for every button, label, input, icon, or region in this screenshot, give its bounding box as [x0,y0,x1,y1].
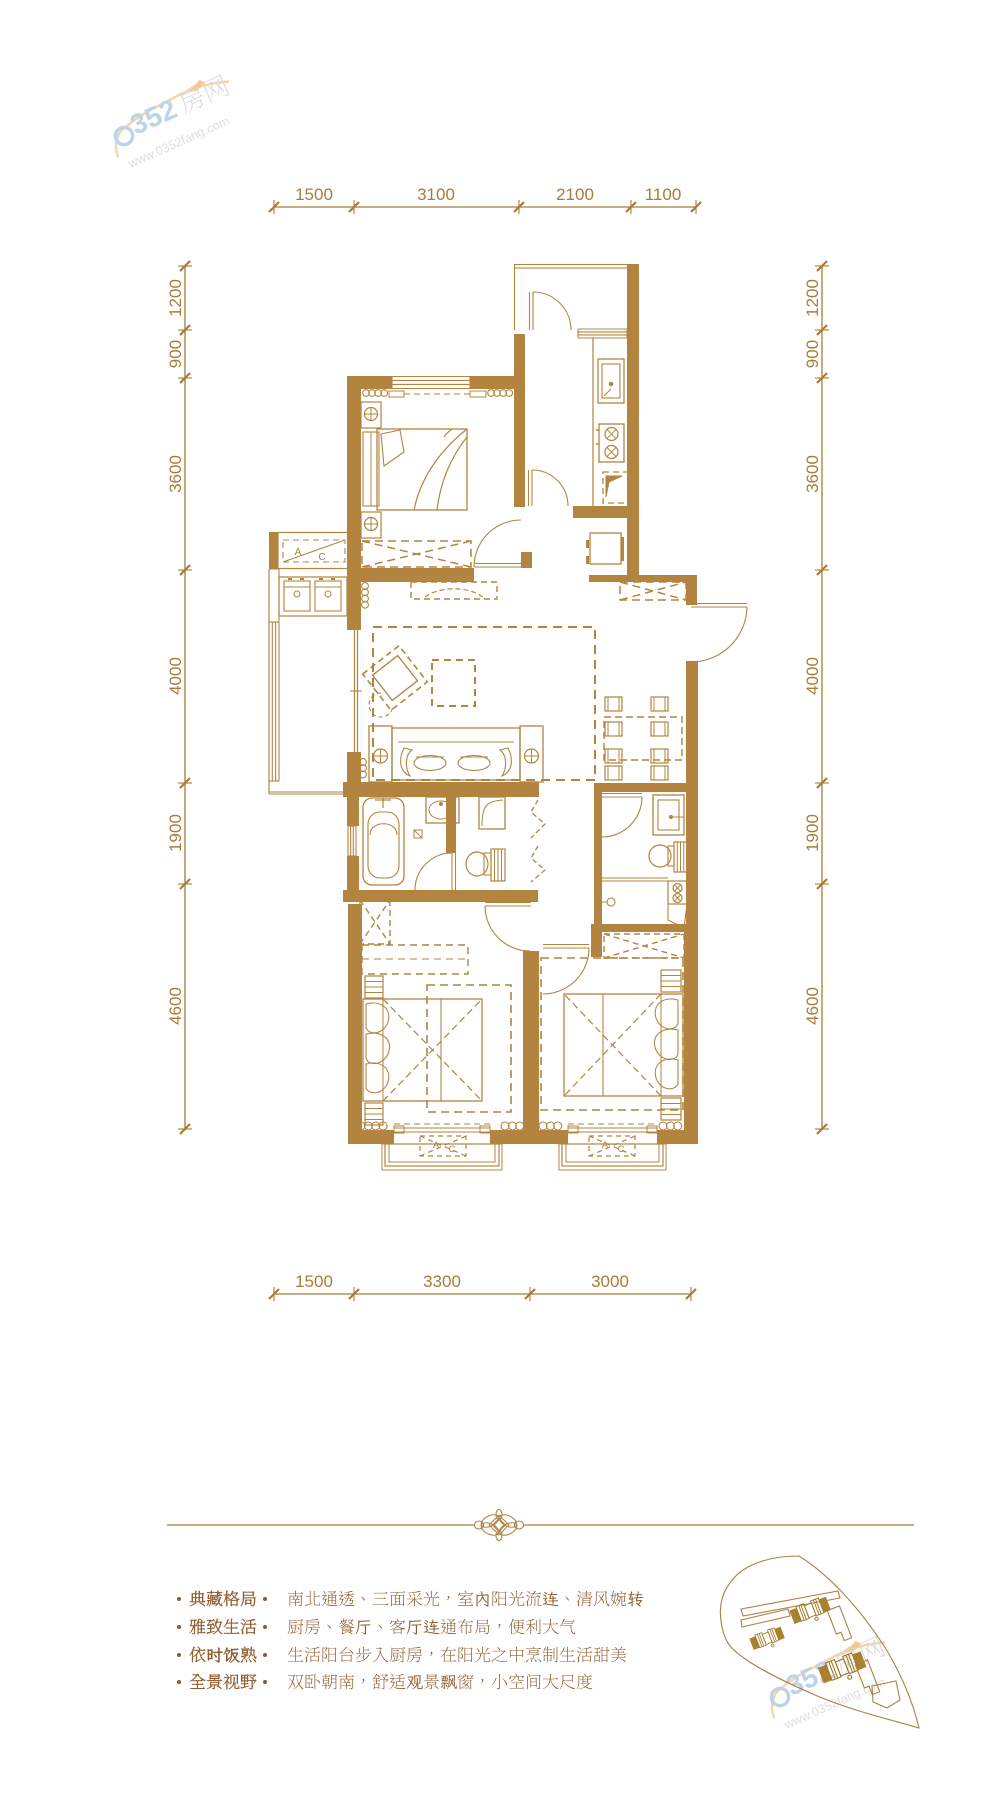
svg-text:1200: 1200 [803,279,822,317]
svg-text:4000: 4000 [803,657,822,695]
svg-text:C: C [318,552,325,563]
svg-text:1200: 1200 [166,279,185,317]
svg-text:A: A [433,1140,440,1151]
svg-text:3000: 3000 [591,1272,629,1291]
svg-text:3100: 3100 [417,185,455,204]
svg-text:1900: 1900 [803,814,822,852]
svg-text:3600: 3600 [803,455,822,493]
svg-text:C: C [449,1144,456,1155]
svg-text:4600: 4600 [166,987,185,1025]
svg-text:2100: 2100 [556,185,594,204]
svg-text:900: 900 [803,340,822,368]
svg-text:3300: 3300 [423,1272,461,1291]
svg-text:1100: 1100 [645,185,682,204]
svg-text:1500: 1500 [295,1272,333,1291]
svg-text:C: C [618,1144,625,1155]
svg-text:4000: 4000 [166,657,185,695]
svg-text:1900: 1900 [166,814,185,852]
svg-text:A: A [602,1140,609,1151]
svg-text:3600: 3600 [166,455,185,493]
svg-text:A: A [295,547,302,558]
svg-text:900: 900 [166,340,185,368]
svg-text:4600: 4600 [803,987,822,1025]
svg-text:1500: 1500 [295,185,333,204]
